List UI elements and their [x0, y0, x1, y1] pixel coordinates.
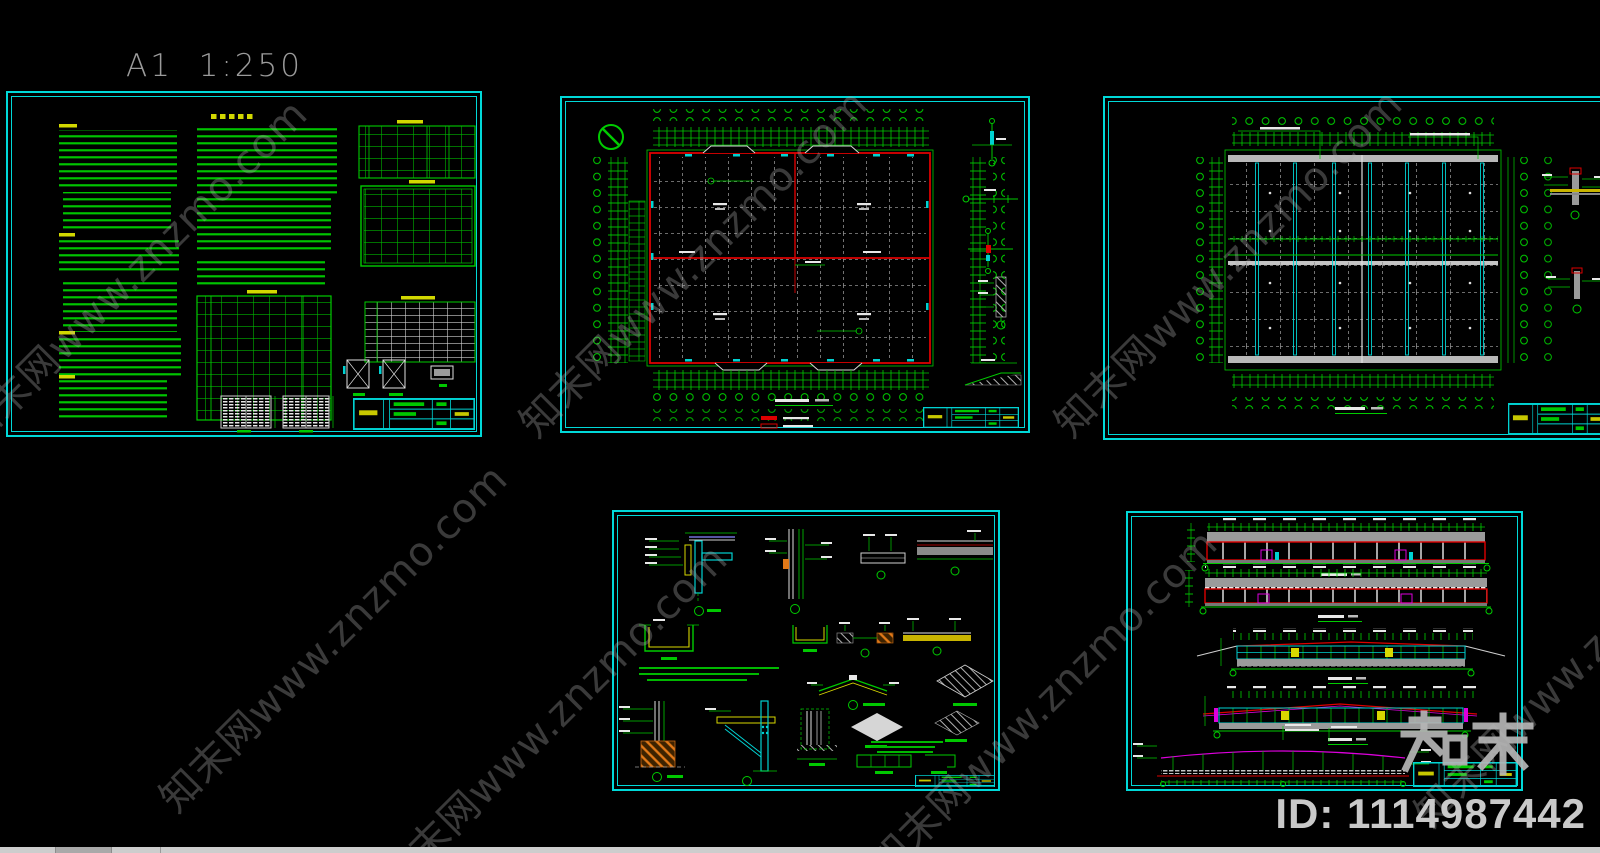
- title-block: [354, 399, 474, 429]
- fire-door-symbol: [379, 360, 405, 396]
- angle-profile: [925, 755, 955, 774]
- sheet-details: [612, 510, 1000, 791]
- parapet-detail: [645, 533, 737, 616]
- drawing-title: [1335, 407, 1387, 414]
- wall-joint-detail: [765, 529, 832, 614]
- title-block: [916, 775, 995, 786]
- znzmo-logo: [1398, 710, 1534, 783]
- panel-sample: [935, 711, 979, 742]
- title-block: [1509, 404, 1600, 434]
- horizontal-scrollbar[interactable]: [0, 847, 1600, 853]
- detail-notes: [871, 741, 943, 753]
- sheet-general-notes: [6, 91, 482, 437]
- floor-plan-linework: [567, 103, 1027, 430]
- cad-viewer-canvas: A1 1:250: [0, 0, 1600, 853]
- window-symbol: [343, 360, 369, 396]
- rolling-door-elevation: [221, 396, 275, 433]
- column-footing-detail: [797, 709, 837, 766]
- ridge-node-detail: [807, 675, 899, 710]
- beam-detail: [861, 534, 905, 579]
- door-window-schedule-table: [361, 180, 475, 266]
- gutter-detail: [639, 619, 779, 681]
- details-linework: [619, 517, 997, 788]
- elevation-2: [1185, 564, 1492, 622]
- general-notes-linework: [13, 98, 479, 434]
- gutter-small-detail: [793, 625, 827, 652]
- window-c1-symbol: [431, 366, 453, 387]
- material-table: [359, 120, 475, 178]
- scrollbar-thumb[interactable]: [55, 847, 112, 853]
- roof-plan-linework: [1110, 103, 1600, 437]
- watermark-text: 知末网www.znzmo.com: [144, 449, 518, 823]
- area-summary-table: [365, 296, 475, 362]
- wall-base-detail: [619, 701, 685, 782]
- section-1: [1133, 724, 1431, 787]
- roof-panel-detail: [903, 618, 971, 655]
- roof-edge-detail: [917, 530, 993, 575]
- notes-title: [211, 114, 253, 119]
- rolling-door-elevation: [283, 396, 333, 433]
- channel-profile: [857, 755, 911, 774]
- scrollbar-divider: [160, 847, 161, 853]
- north-arrow-icon: [599, 125, 623, 149]
- sheet-floor-plan: [560, 96, 1030, 433]
- ramp-detail: [965, 359, 1021, 385]
- title-block: [924, 408, 1019, 428]
- sheet-size-label: A1 1:250: [126, 48, 303, 84]
- legend: [761, 416, 813, 428]
- sheet-roof-plan: [1103, 96, 1600, 440]
- panel-sample: [937, 665, 993, 706]
- canopy-bracket-detail: [705, 701, 777, 786]
- joint-detail: [837, 622, 893, 657]
- watermark-id-label: ID: 1114987442: [1275, 790, 1586, 838]
- elevation-3: [1197, 628, 1505, 684]
